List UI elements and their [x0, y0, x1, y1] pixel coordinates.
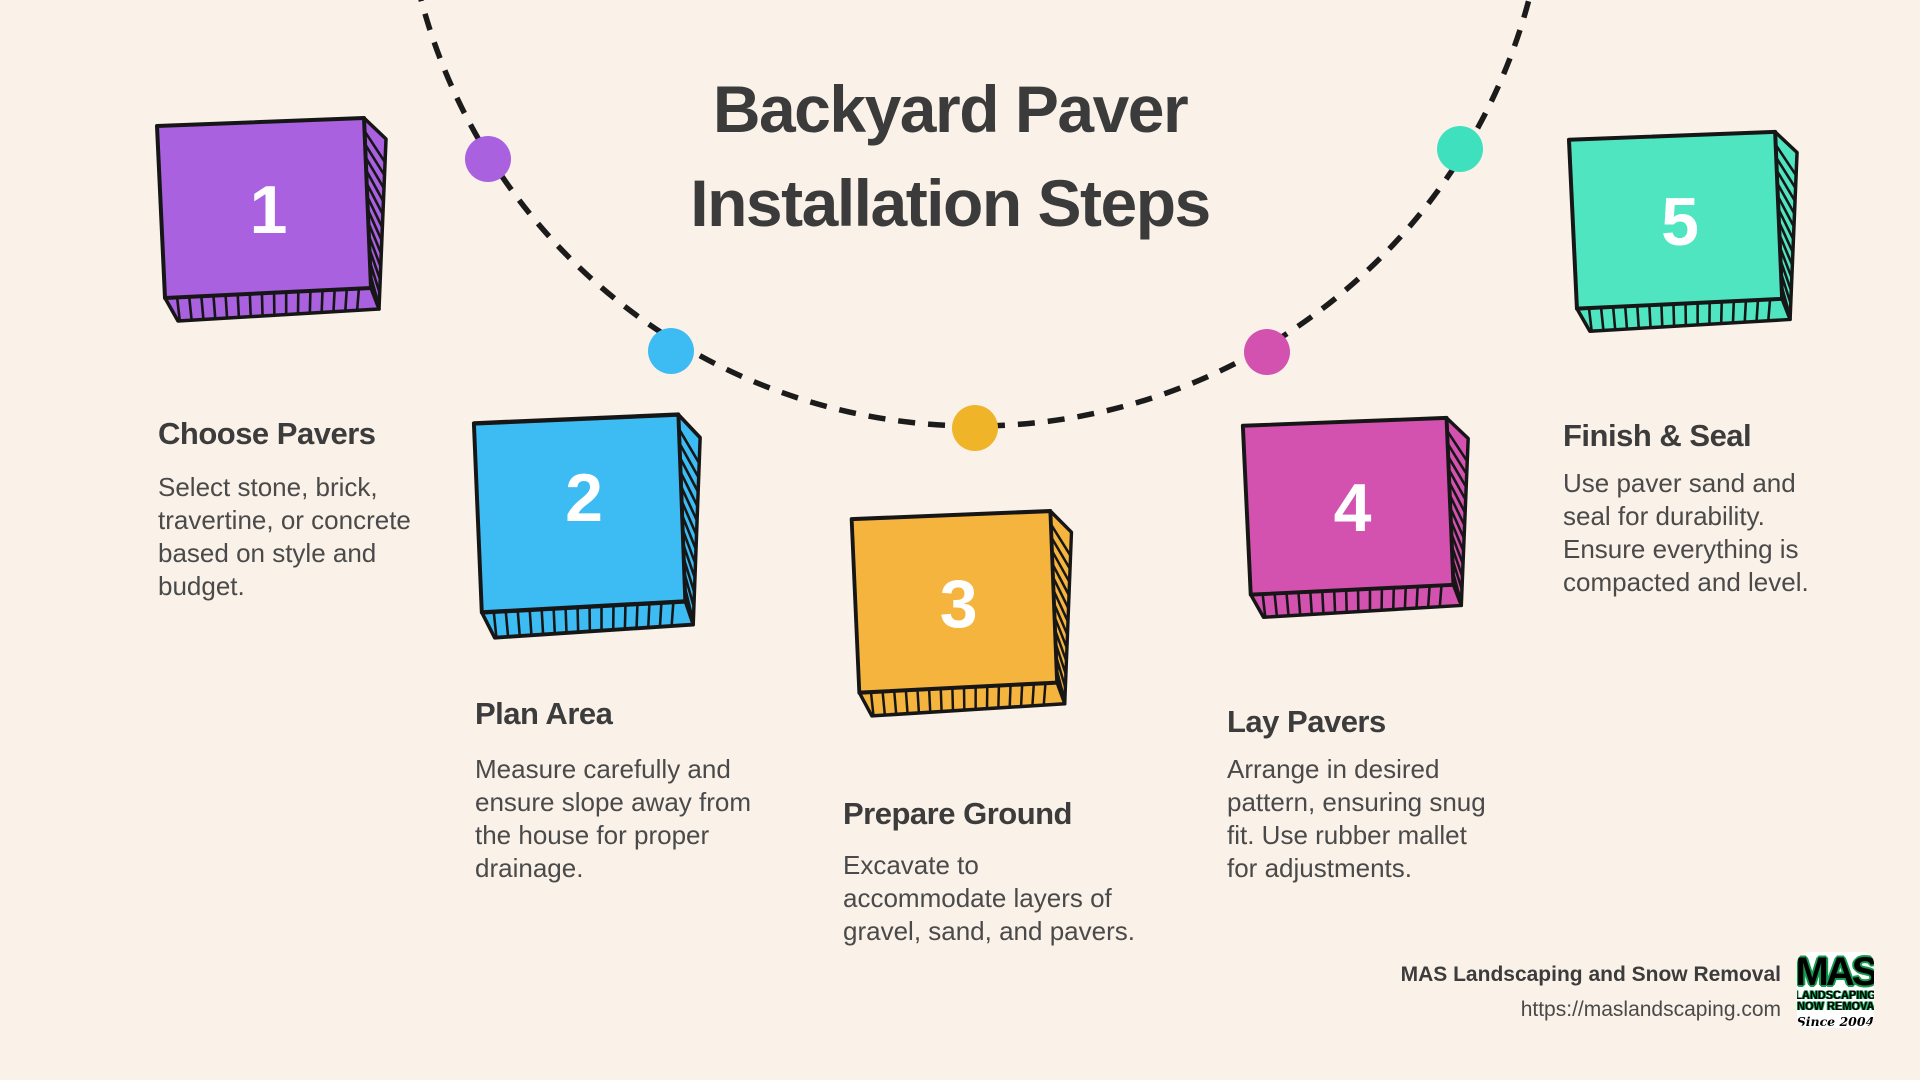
- step-5-number: 5: [1661, 188, 1698, 256]
- step-3-description: Excavate to accommodate layers of gravel…: [843, 849, 1163, 948]
- step-1-description: Select stone, brick, travertine, or conc…: [158, 471, 478, 603]
- company-url-link[interactable]: https://maslandscaping.com: [1521, 998, 1781, 1022]
- step-2-description: Measure carefully and ensure slope away …: [475, 753, 795, 885]
- step-1-card: 1: [148, 112, 398, 334]
- step-2-number: 2: [565, 464, 602, 532]
- company-name: MAS Landscaping and Snow Removal: [1401, 963, 1781, 987]
- step-2-heading: Plan Area: [475, 695, 612, 732]
- timeline-dot-3: [952, 405, 998, 451]
- step-1-heading: Choose Pavers: [158, 415, 376, 452]
- timeline-dot-4: [1244, 329, 1290, 375]
- step-2-card: 2: [465, 408, 712, 652]
- logo-mas-text: MAS: [1797, 954, 1874, 991]
- step-4-number: 4: [1334, 474, 1371, 542]
- logo-since-text: Since 2004: [1797, 1014, 1874, 1028]
- company-logo: MAS LANDSCAPING SNOW REMOVAL Since 2004: [1797, 952, 1874, 1028]
- step-4-description: Arrange in desired pattern, ensuring snu…: [1227, 753, 1547, 885]
- step-4-card: 4: [1234, 412, 1480, 630]
- step-1-number: 1: [250, 176, 287, 244]
- page-title-line2: Installation Steps: [430, 156, 1470, 250]
- step-3-card: 3: [843, 505, 1083, 729]
- step-4-heading: Lay Pavers: [1227, 703, 1386, 740]
- company-logo-art: MAS LANDSCAPING SNOW REMOVAL Since 2004: [1797, 954, 1874, 1028]
- page-title-line1: Backyard Paver: [430, 62, 1470, 156]
- step-5-heading: Finish & Seal: [1563, 417, 1751, 454]
- logo-snow-removal-text: SNOW REMOVAL: [1797, 1002, 1874, 1014]
- infographic-canvas: Backyard Paver Installation Steps 1 Choo…: [0, 0, 1920, 1080]
- step-3-heading: Prepare Ground: [843, 795, 1072, 832]
- timeline-dot-2: [648, 328, 694, 374]
- page-title: Backyard Paver Installation Steps: [430, 62, 1470, 250]
- step-5-card: 5: [1560, 126, 1809, 344]
- step-3-number: 3: [940, 570, 977, 638]
- step-5-description: Use paver sand and seal for durability. …: [1563, 467, 1883, 599]
